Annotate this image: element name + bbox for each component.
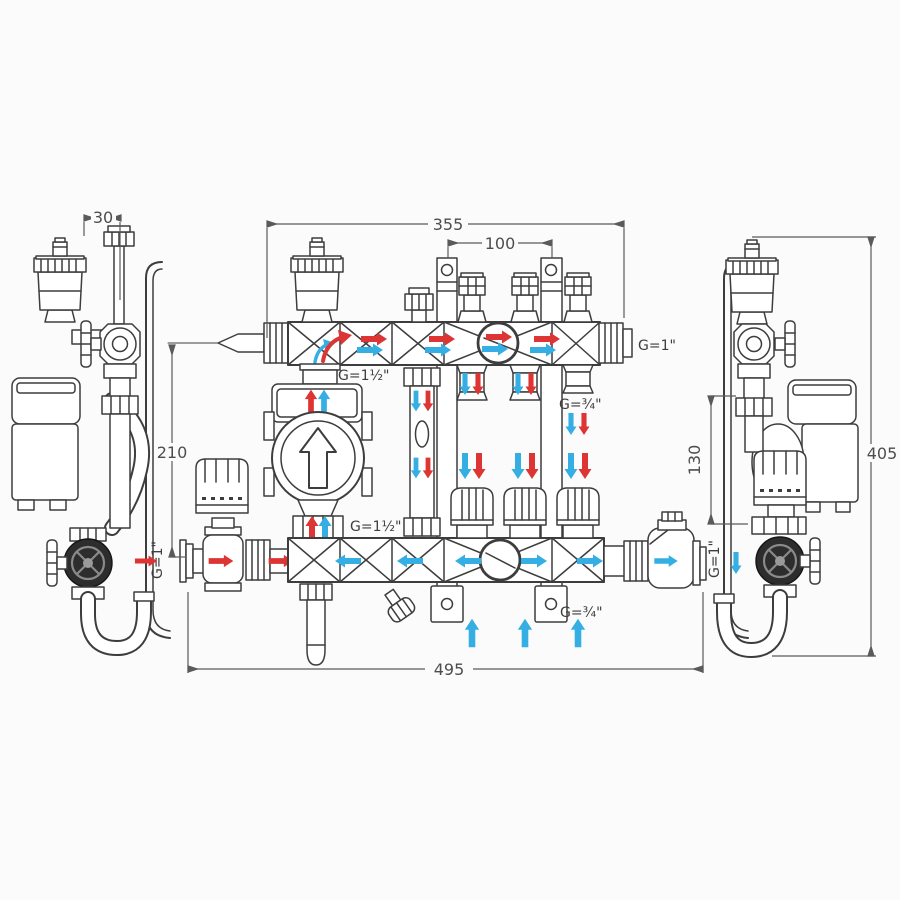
pump-motor-housing xyxy=(12,378,80,424)
label-right-port: G=1" xyxy=(707,540,723,578)
label-manifold-end: G=1" xyxy=(638,338,676,354)
dim-405: 405 xyxy=(867,444,898,463)
ubend-port-left xyxy=(134,592,154,601)
handwheel-right-valve xyxy=(775,321,795,367)
handwheel-right-isolation xyxy=(800,538,820,584)
thermostatic-head-right xyxy=(754,451,806,505)
isolation-valve-right xyxy=(756,537,804,585)
dim-100: 100 xyxy=(485,234,516,253)
label-supply-inlet: G=1½" xyxy=(338,368,390,384)
label-pump-union: G=1½" xyxy=(350,519,402,535)
cold-outlet-arrow xyxy=(730,552,741,574)
left-pump-valve-assembly xyxy=(12,226,170,648)
flow-meter-knob-2 xyxy=(504,488,546,538)
loop-shutoff-cap-3 xyxy=(564,273,592,322)
drain-hose-barb xyxy=(218,334,264,352)
return-manifold-bar xyxy=(288,488,706,665)
handwheel-left-isolation xyxy=(47,540,67,586)
isolation-valve-left xyxy=(64,539,112,587)
loop-shutoff-cap-1 xyxy=(458,273,486,322)
handwheel-left-valve xyxy=(81,321,101,367)
manifold-technical-drawing: 30 355 100 210 130 405 495 xyxy=(0,0,900,900)
dim-130: 130 xyxy=(685,445,704,476)
dim-495: 495 xyxy=(434,660,465,679)
ball-valve-right xyxy=(734,324,774,364)
air-vent-left xyxy=(34,238,86,322)
bleed-valve xyxy=(412,310,426,322)
return-check-valve xyxy=(604,512,706,588)
ball-valve-left xyxy=(100,324,140,364)
right-pump-valve-assembly xyxy=(714,240,858,650)
dim-355: 355 xyxy=(433,215,464,234)
bypass-column xyxy=(404,368,440,536)
loop-shutoff-cap-2 xyxy=(511,273,539,322)
air-vent-right xyxy=(726,240,778,324)
label-loop-outlet-bottom: G=¾" xyxy=(560,605,603,621)
pump-motor-housing-right xyxy=(788,380,856,424)
flow-meter-knob-1 xyxy=(451,488,493,538)
ubend-port-right xyxy=(714,594,734,603)
drain-cock xyxy=(378,585,417,624)
air-vent-main xyxy=(291,238,343,322)
label-loop-outlet-top: G=¾" xyxy=(559,397,602,413)
dim-210: 210 xyxy=(157,443,188,462)
sensor-pocket-pipe xyxy=(300,584,332,665)
thermostatic-head xyxy=(196,459,248,513)
drawing-canvas: 30 355 100 210 130 405 495 xyxy=(0,0,900,900)
flow-meter-knob-3 xyxy=(557,488,599,538)
dim-30: 30 xyxy=(93,208,113,227)
